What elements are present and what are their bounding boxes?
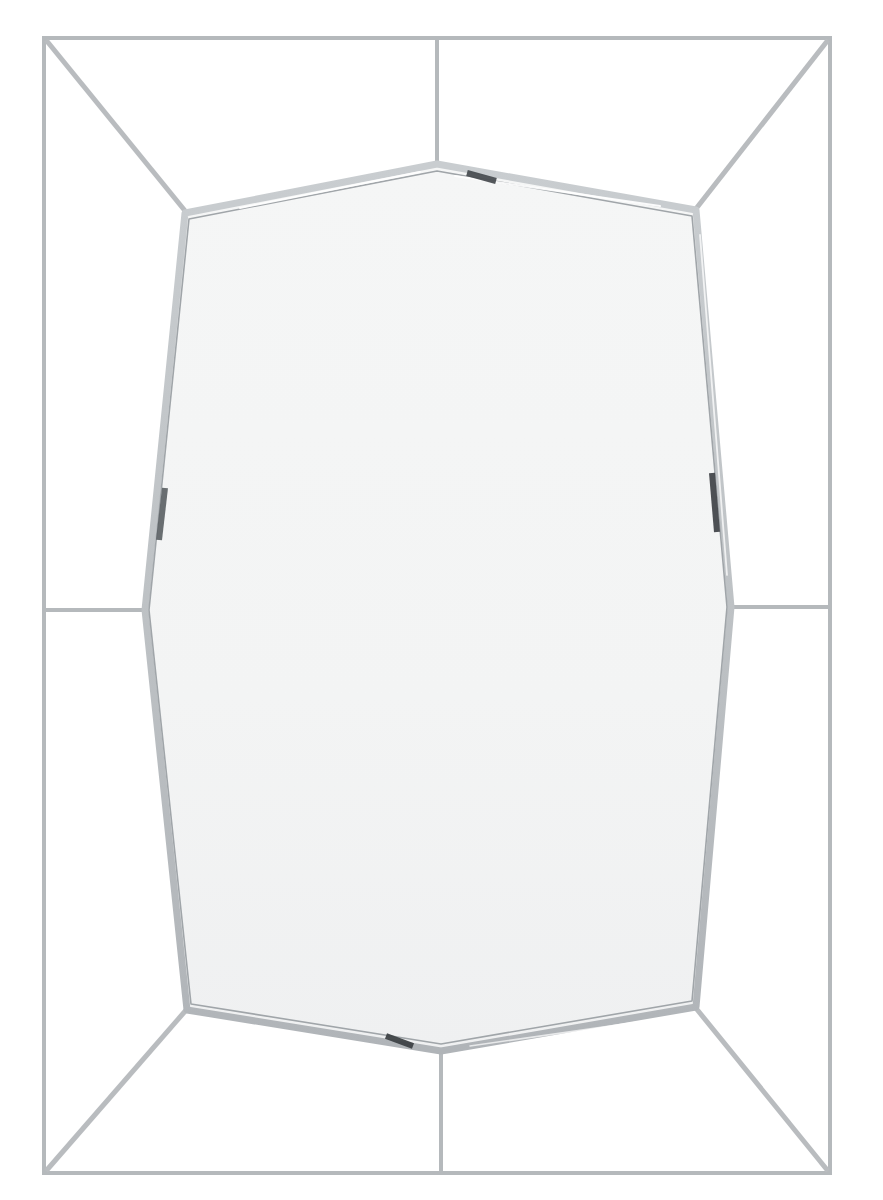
mirror-image bbox=[0, 0, 883, 1200]
bottom-left-diagonal bbox=[46, 1009, 187, 1171]
top-left-diagonal bbox=[46, 40, 186, 212]
mirror-frame-group bbox=[44, 38, 830, 1173]
bottom-right-diagonal bbox=[695, 1007, 828, 1171]
mirror-glass bbox=[145, 164, 731, 1051]
wall-mirror-photo bbox=[0, 0, 883, 1200]
product-photo-page bbox=[0, 0, 883, 1200]
top-right-diagonal bbox=[695, 40, 828, 210]
